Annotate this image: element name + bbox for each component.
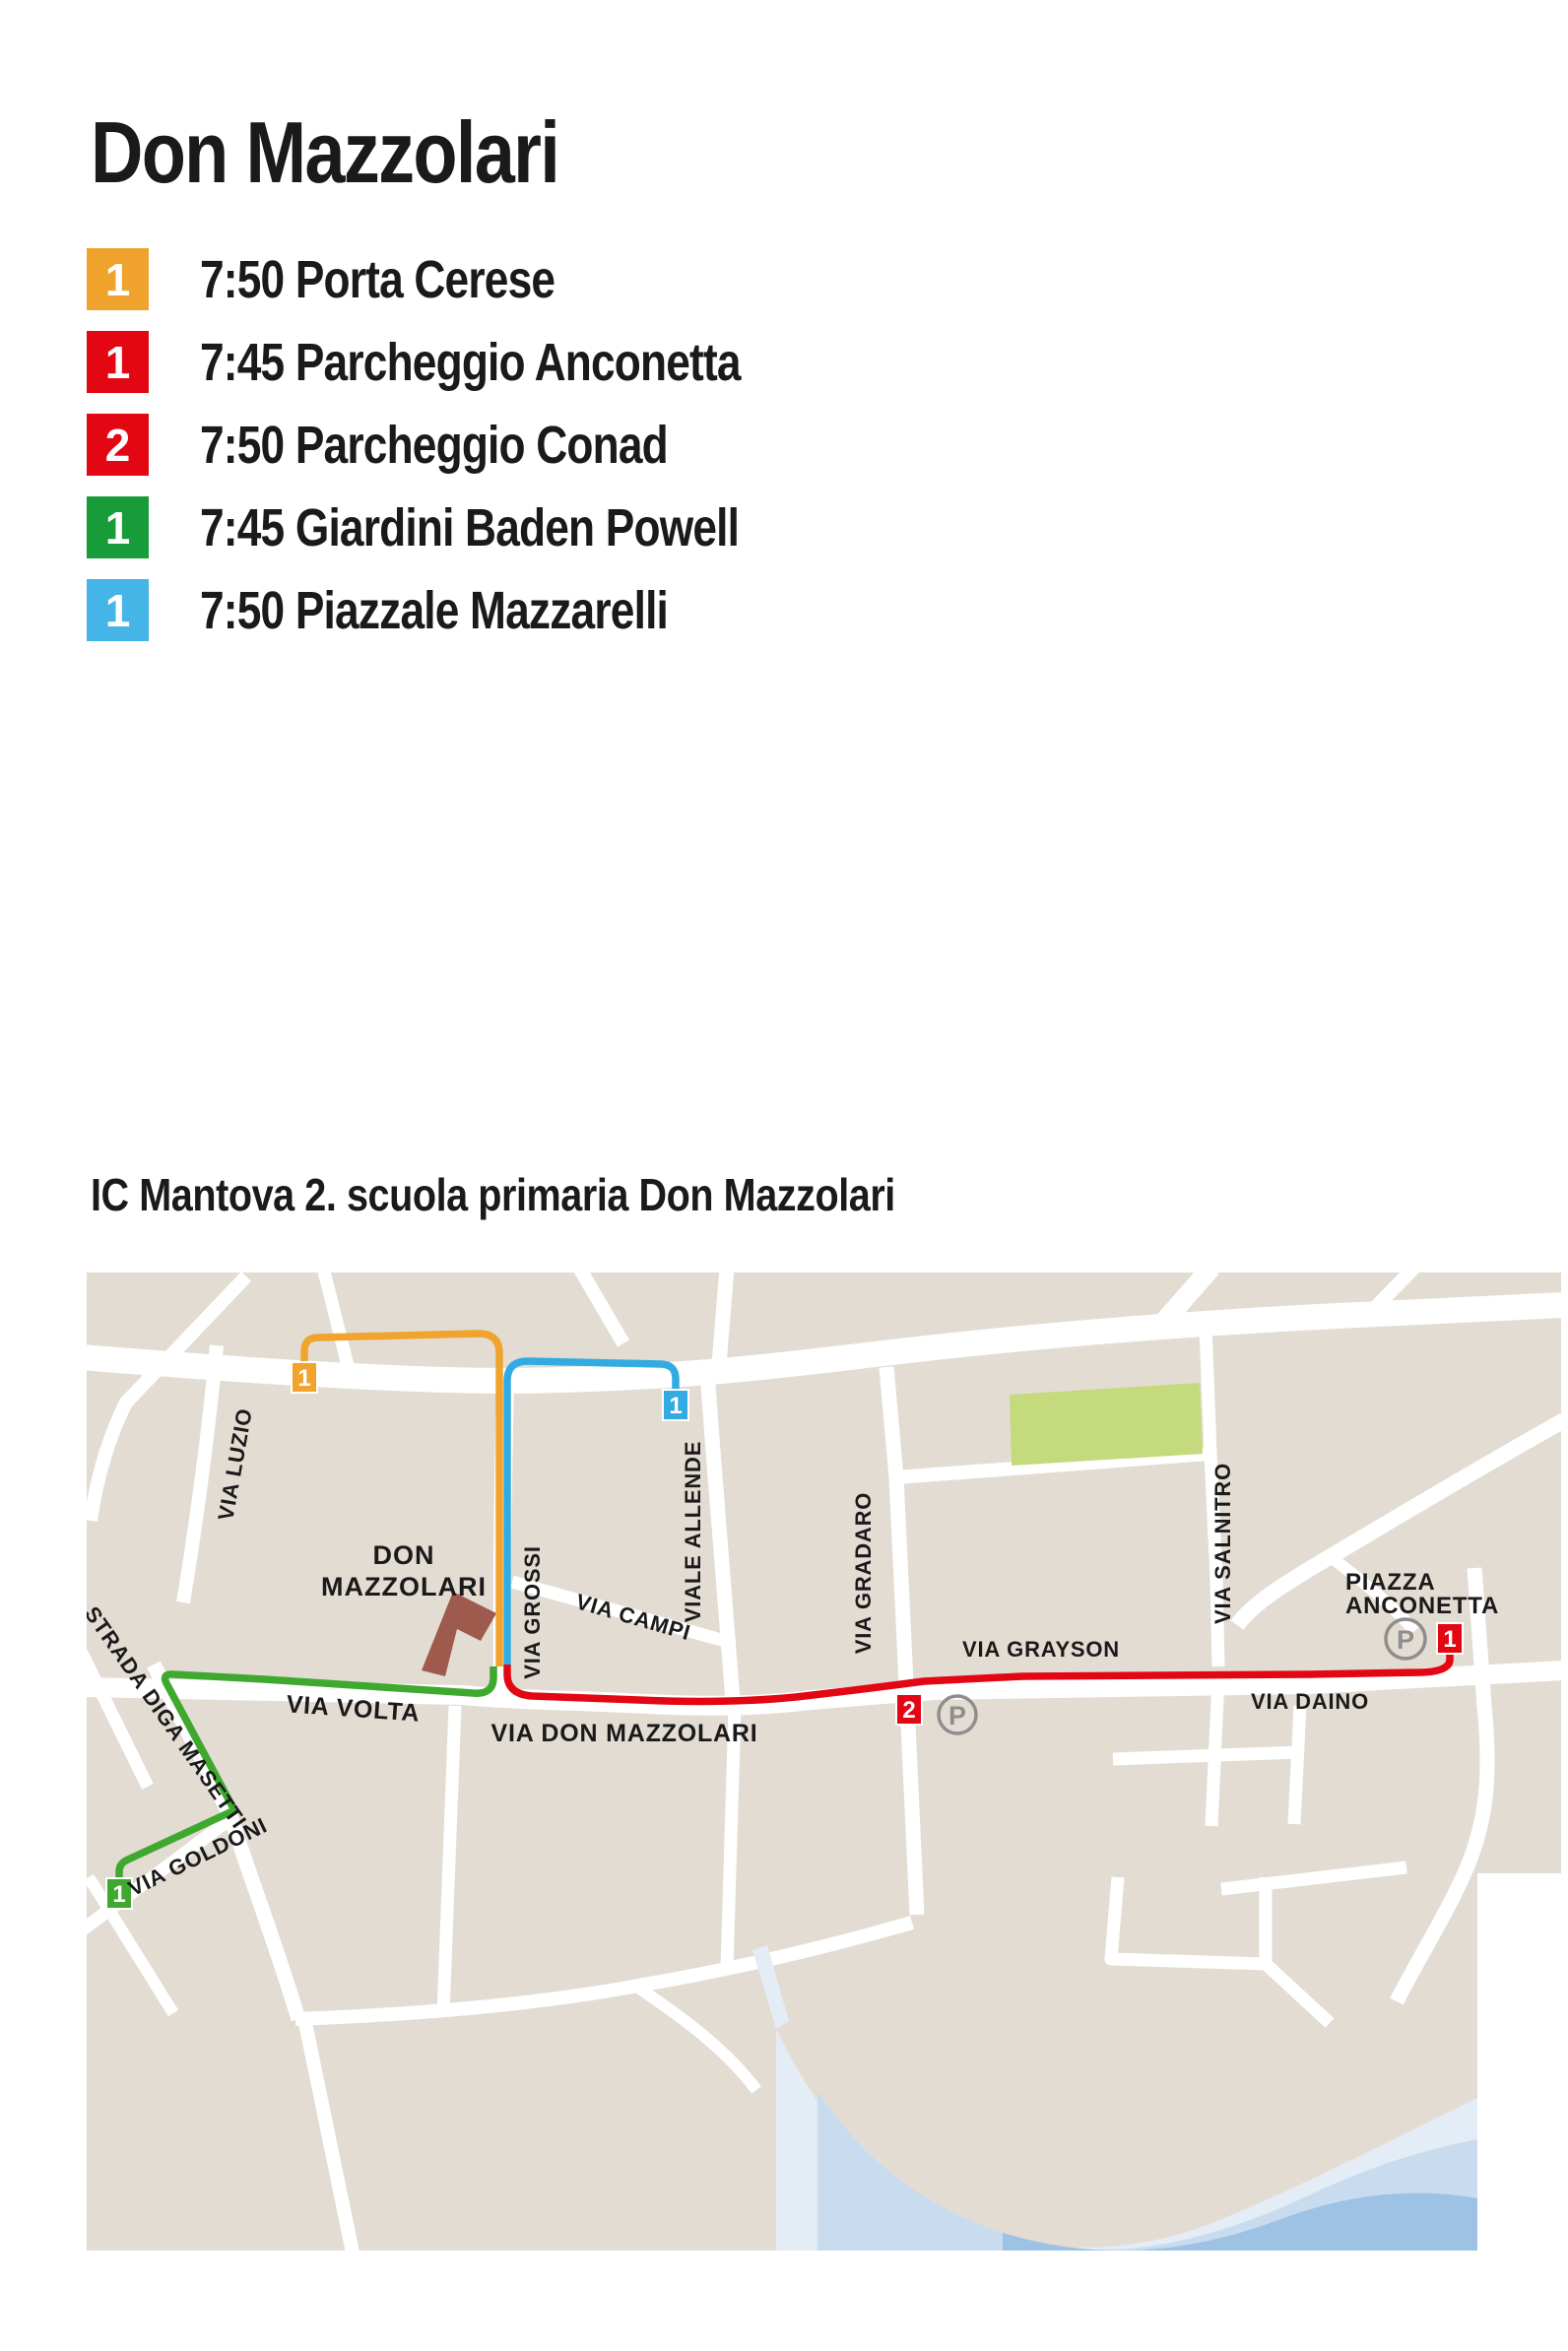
street-label-don-mazzolari: VIA DON MAZZOLARI — [491, 1720, 758, 1747]
street-label-gradaro: VIA GRADARO — [851, 1492, 876, 1654]
map-stop-badge-blue-number: 1 — [669, 1393, 682, 1419]
line-badge-green: 1 — [87, 496, 149, 558]
street-label-salnitro: VIA SALNITRO — [1210, 1463, 1235, 1624]
legend-label: 7:45 Parcheggio Anconetta — [200, 331, 741, 393]
piazza-anconetta-label-line1: PIAZZA — [1345, 1569, 1435, 1596]
legend-label: 7:50 Piazzale Mazzarelli — [200, 579, 668, 641]
route-map: 1 1 1 1 2 P P VIA LUZIO VIA GROSSI VIALE… — [87, 1273, 1561, 2251]
street-label-allende: VIALE ALLENDE — [681, 1441, 705, 1622]
legend-label: 7:50 Parcheggio Conad — [200, 414, 668, 476]
piazza-anconetta-label-line2: ANCONETTA — [1345, 1593, 1499, 1619]
park-area — [1010, 1383, 1203, 1466]
school-label-line2: MAZZOLARI — [321, 1572, 487, 1601]
line-badge-red-1: 1 — [87, 331, 149, 393]
page-title: Don Mazzolari — [91, 102, 558, 203]
street-label-grossi: VIA GROSSI — [520, 1545, 545, 1679]
map-stop-badge-orange-number: 1 — [297, 1365, 310, 1392]
street-label-daino: VIA DAINO — [1251, 1689, 1369, 1714]
parking-icon-letter: P — [1397, 1625, 1414, 1655]
legend-label: 7:45 Giardini Baden Powell — [200, 496, 739, 558]
street-label-grayson: VIA GRAYSON — [962, 1637, 1120, 1662]
map-section-title: IC Mantova 2. scuola primaria Don Mazzol… — [91, 1168, 895, 1221]
line-badge-blue: 1 — [87, 579, 149, 641]
line-badge-orange: 1 — [87, 248, 149, 310]
school-label-line1: DON — [373, 1540, 435, 1570]
parking-icon-letter: P — [948, 1701, 966, 1731]
line-badge-red-2: 2 — [87, 414, 149, 476]
legend-label: 7:50 Porta Cerese — [200, 248, 555, 310]
map-stop-badge-red-1-number: 1 — [1443, 1626, 1456, 1653]
map-edge-mask — [1477, 1873, 1561, 2251]
map-stop-badge-red-2-number: 2 — [902, 1697, 915, 1724]
map-stop-badge-green-number: 1 — [112, 1881, 125, 1908]
